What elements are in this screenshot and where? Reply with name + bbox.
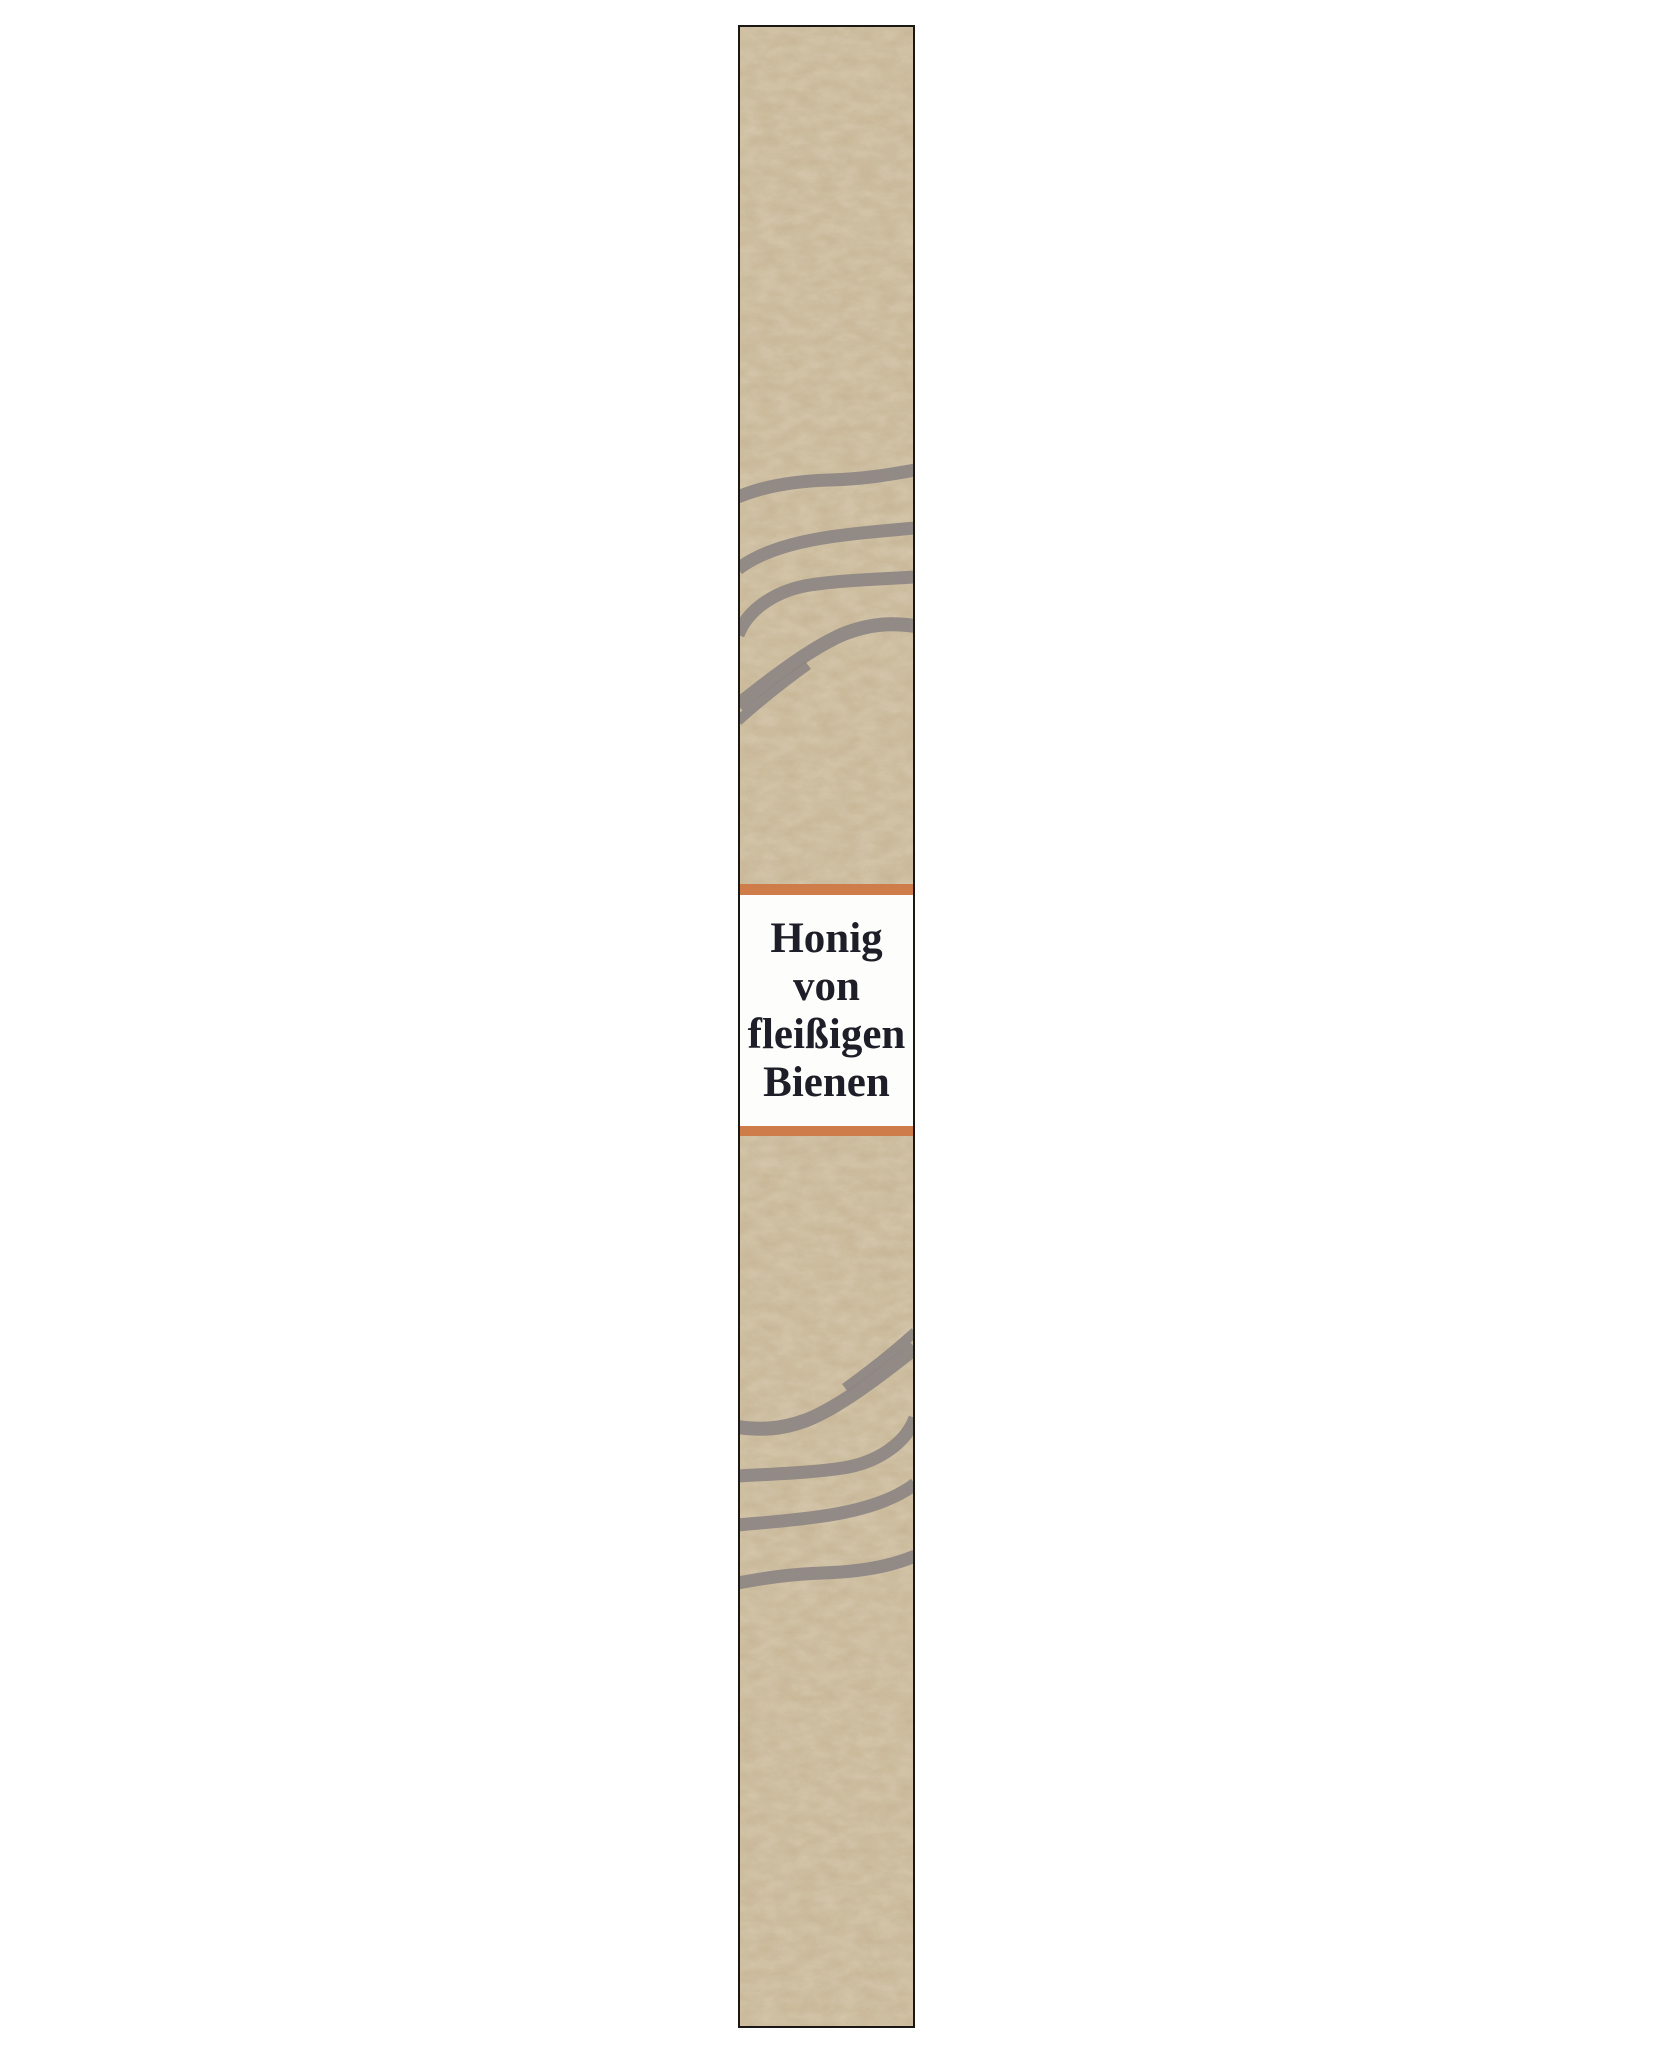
band-label-line-2: von [793, 963, 860, 1011]
band-label-line-4: Bienen [763, 1059, 890, 1107]
honey-jar-band: Honig von fleißigen Bienen [738, 25, 915, 2028]
band-label: Honig von fleißigen Bienen [740, 884, 913, 1136]
band-label-line-3: fleißigen [748, 1011, 906, 1059]
band-label-line-1: Honig [770, 915, 882, 963]
page: Honig von fleißigen Bienen [0, 0, 1654, 2055]
